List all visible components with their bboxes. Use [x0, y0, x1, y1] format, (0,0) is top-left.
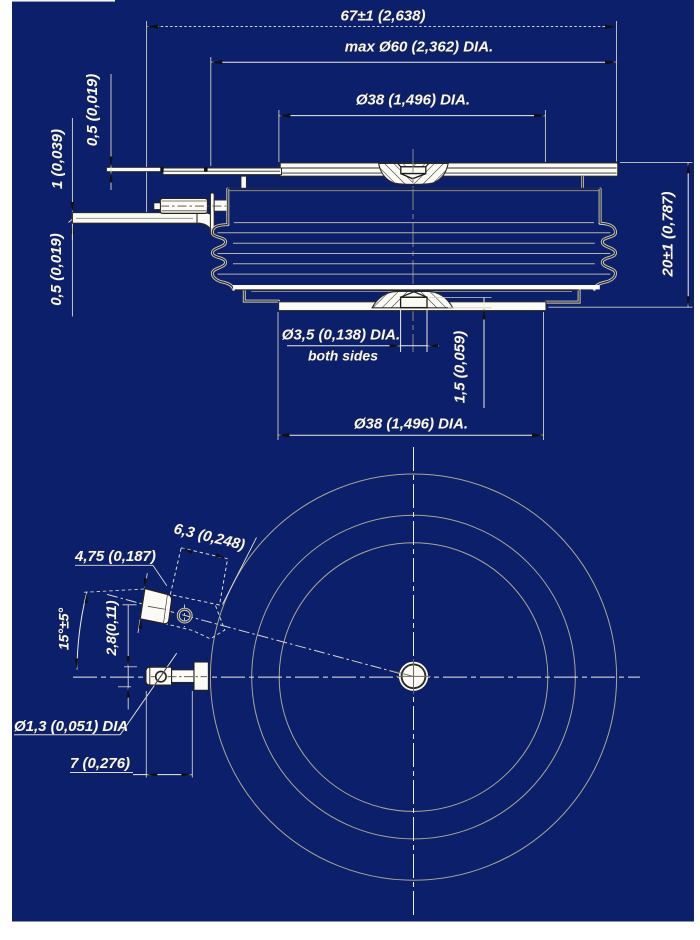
svg-text:Ø3,5 (0,138) DIA.: Ø3,5 (0,138) DIA.	[282, 327, 400, 344]
svg-text:both sides: both sides	[308, 348, 378, 364]
svg-text:7 (0,276): 7 (0,276)	[70, 755, 130, 772]
svg-text:Ø38 (1,496) DIA.: Ø38 (1,496) DIA.	[354, 416, 468, 433]
svg-text:0,5 (0,019): 0,5 (0,019)	[48, 233, 65, 306]
svg-text:Ø38 (1,496) DIA.: Ø38 (1,496) DIA.	[356, 92, 470, 109]
svg-text:Ø1,3 (0,051) DIA: Ø1,3 (0,051) DIA	[14, 718, 128, 735]
svg-text:1,5 (0,059): 1,5 (0,059)	[452, 331, 469, 404]
svg-text:2,8(0,11): 2,8(0,11)	[103, 600, 119, 656]
svg-text:1 (0,039): 1 (0,039)	[49, 129, 66, 189]
svg-text:max Ø60 (2,362) DIA.: max Ø60 (2,362) DIA.	[345, 39, 493, 56]
svg-text:15°±5°: 15°±5°	[56, 607, 72, 650]
svg-text:0,5 (0,019): 0,5 (0,019)	[84, 74, 101, 147]
svg-text:4,75 (0,187): 4,75 (0,187)	[74, 548, 156, 565]
svg-text:67±1 (2,638): 67±1 (2,638)	[341, 8, 426, 25]
svg-text:20±1 (0,787): 20±1 (0,787)	[660, 192, 677, 278]
